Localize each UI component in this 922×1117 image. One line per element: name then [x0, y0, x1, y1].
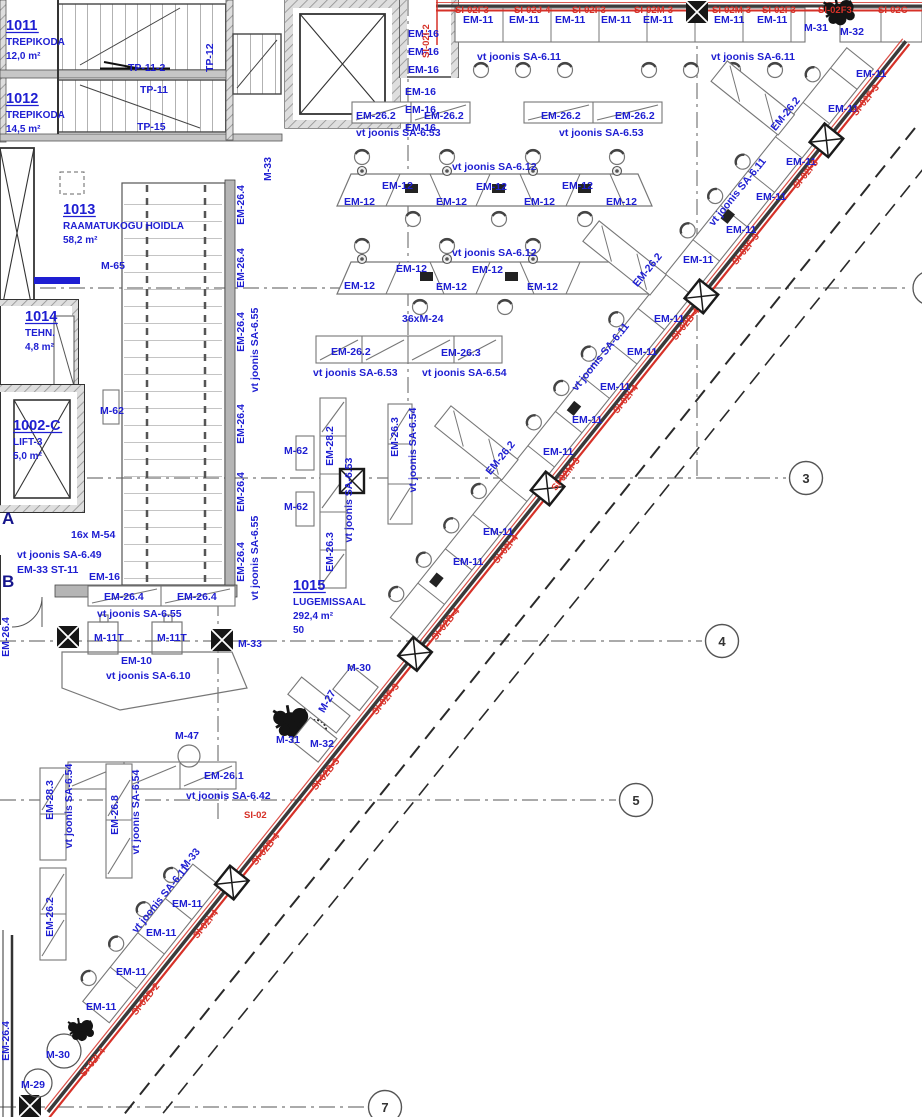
annotation-label: EM-26.4: [104, 591, 144, 603]
annotation-label: M-33: [238, 638, 262, 650]
room-area: 12,0 m²: [6, 51, 41, 62]
room-name: TREPIKODA: [6, 37, 65, 48]
room-number: 1015: [293, 578, 325, 594]
annotation-label: M-65: [101, 260, 125, 272]
annotation-label: EM-12: [436, 281, 467, 293]
column: [686, 1, 708, 23]
annotation-label: EM-11: [555, 14, 586, 26]
annotation-label: EM-10: [121, 655, 152, 667]
annotation-label: EM-11: [116, 966, 147, 978]
annotation-label: EM-11: [683, 254, 714, 266]
room-number: 1014: [25, 309, 57, 325]
room-number: 1011: [6, 18, 37, 34]
annotation-label: EM-26.4: [235, 472, 247, 512]
annotation-label: EM-26.3: [324, 532, 336, 572]
annotation-label: EM-11: [572, 414, 603, 426]
annotation-label: M-31: [804, 22, 828, 34]
annotation-label: EM-26.8: [109, 795, 121, 835]
annotation-label: vt joonis SA-6.54: [130, 770, 142, 855]
annotation-label: EM-33 ST-11: [17, 564, 78, 576]
door-arc: [12, 597, 42, 627]
annotation-label: EM-12: [396, 263, 427, 275]
annotation-label: vt joonis SA-6.53: [559, 127, 644, 139]
annotation-label: vt joonis SA-6.49: [17, 549, 102, 561]
room-name: LIFT-3: [13, 437, 43, 448]
annotation-label: vt joonis SA-6.54: [407, 408, 419, 493]
annotation-label: EM-26.4: [235, 312, 247, 352]
annotation-label: vt joonis SA-6.12: [452, 161, 537, 173]
annotation-label: EM-12: [436, 196, 467, 208]
annotation-label: vt joonis SA-6.53: [356, 127, 441, 139]
annotation-label: vt joonis SA-6.53: [343, 458, 355, 543]
annotation-label: EM-26.4: [0, 1021, 12, 1061]
annotation-label: vt joonis SA-6.42: [186, 790, 271, 802]
annotation-label: EM-11: [643, 14, 674, 26]
annotation-label: EM-12: [344, 280, 375, 292]
annotation-label: SI-02C: [878, 5, 908, 16]
annotation-label: vt joonis SA-6.54: [422, 367, 507, 379]
room-number: 1002-C: [13, 418, 61, 434]
annotation-label: M-32: [310, 738, 334, 750]
annotation-label: M-31: [276, 734, 300, 746]
annotation-label: M-32: [840, 26, 864, 38]
annotation-label: EM-12: [562, 180, 593, 192]
annotation-label: EM-26.2: [424, 110, 464, 122]
annotation-label: EM-12: [382, 180, 413, 192]
grid-bubble: 7: [369, 1091, 402, 1117]
annotation-label: vt joonis SA-6.12: [452, 247, 537, 259]
annotation-label: EM-26.2: [356, 110, 396, 122]
room-name: TREPIKODA: [6, 110, 65, 121]
annotation-label: M-47: [175, 730, 199, 742]
blue-sill: [34, 277, 80, 284]
annotation-label: M-11T: [157, 632, 187, 644]
annotation-label: vt joonis SA-6.55: [97, 608, 182, 620]
annotation-label: vt joonis SA-6.55: [249, 516, 261, 601]
column: [211, 629, 233, 651]
annotation-label: EM-26.4: [235, 404, 247, 444]
grid-bubble: 4: [706, 625, 739, 658]
room-name: TEHN.: [25, 328, 55, 339]
annotation-label: EM-26.4: [177, 591, 217, 603]
room-number: 1013: [63, 202, 95, 218]
annotation-label: EM-11: [509, 14, 540, 26]
annotation-label: EM-26.3: [441, 347, 481, 359]
annotation-label: EM-11: [172, 898, 203, 910]
annotation-label: vt joonis SA-6.11: [711, 51, 795, 63]
annotation-label: vt joonis SA-6.55: [249, 308, 261, 393]
annotation-label: EM-26.2: [541, 110, 581, 122]
room-area: 4,8 m²: [25, 342, 55, 353]
column: [57, 626, 79, 648]
grid-letter: B: [2, 572, 14, 591]
room-area: 5,0 m²: [13, 451, 43, 462]
annotation-label: EM-12: [472, 264, 503, 276]
annotation-label: TP-11-2: [128, 62, 166, 74]
annotation-label: EM-16: [408, 64, 439, 76]
annotation-label: vt joonis SA-6.11: [477, 51, 561, 63]
room-name: LUGEMISSAAL: [293, 597, 366, 608]
grid-bubble-number: 4: [718, 634, 726, 649]
annotation-label: M-29: [21, 1079, 45, 1091]
annotation-label: EM-26.4: [235, 185, 247, 225]
annotation-label: M-33: [262, 157, 274, 181]
annotation-label: EM-26.2: [44, 897, 56, 937]
annotation-label: EM-26.2: [331, 346, 371, 358]
annotation-label: 36xM-24: [402, 313, 444, 325]
room-number: 1012: [6, 91, 38, 107]
annotation-label: TP-12: [204, 43, 216, 72]
elevator-shaft-left: [0, 148, 80, 318]
grid-bubble: 3: [790, 462, 823, 495]
room-area: 58,2 m²: [63, 235, 98, 246]
annotation-label: EM-12: [527, 281, 558, 293]
annotation-label: EM-26.4: [0, 617, 12, 657]
annotation-label: M-62: [284, 501, 308, 513]
annotation-label: EM-11: [453, 556, 484, 568]
stair-tp12-shaft: [233, 34, 281, 94]
annotation-label: M-30: [347, 662, 371, 674]
annotation-label: EM-11: [146, 927, 177, 939]
grid-bubble-number: 7: [381, 1100, 388, 1115]
plant-scribble: [68, 1018, 94, 1041]
annotation-label: EM-16: [405, 86, 436, 98]
annotation-label: EM-11: [714, 14, 745, 26]
grid-bubble: 5: [620, 784, 653, 817]
annotation-label: SI-02I-2: [421, 24, 432, 58]
annotation-label: EM-11: [627, 346, 658, 358]
annotation-label: EM-11: [856, 68, 887, 80]
annotation-label: EM-26.4: [235, 542, 247, 582]
annotation-label: EM-12: [476, 181, 507, 193]
column: [19, 1095, 41, 1117]
annotation-label: vt joonis SA-6.53: [313, 367, 398, 379]
room-capacity: 50: [293, 625, 305, 636]
annotation-label: EM-11: [756, 191, 787, 203]
annotation-label: EM-12: [344, 196, 375, 208]
annotation-label: EM-26.2: [615, 110, 655, 122]
floor-plan-drawing: TP-11-2TP-12TP-11TP-15M-33EM-16EM-16EM-1…: [0, 0, 922, 1117]
room-area: 14,5 m²: [6, 124, 41, 135]
annotation-label: SI-02B-4: [250, 831, 283, 868]
grid-bubble-number: 5: [632, 793, 639, 808]
annotation-label: EM-11: [543, 446, 574, 458]
annotation-label: EM-12: [606, 196, 637, 208]
annotation-label: TP-11: [140, 84, 168, 96]
annotation-label: EM-28.2: [324, 426, 336, 466]
annotation-label: M-62: [284, 445, 308, 457]
annotation-label: EM-16: [89, 571, 120, 583]
room-area: 292,4 m²: [293, 611, 334, 622]
annotation-label: M-62: [100, 405, 124, 417]
annotation-label: 16x M-54: [71, 529, 116, 541]
annotation-label: EM-11: [86, 1001, 117, 1013]
annotation-label: EM-26.4: [235, 248, 247, 288]
floor-plan-canvas: TP-11-2TP-12TP-11TP-15M-33EM-16EM-16EM-1…: [0, 0, 922, 1117]
annotation-label: M-11T: [94, 632, 124, 644]
annotation-label: SI-02B-3: [310, 756, 342, 792]
annotation-label: EM-11: [463, 14, 494, 26]
annotation-label: EM-11: [601, 14, 632, 26]
grid-letter: A: [2, 509, 14, 528]
annotation-label: vt joonis SA-6.10: [106, 670, 191, 682]
grid-bubble-partial-right: [913, 271, 922, 305]
room-name: RAAMATUKOGU HOIDLA: [63, 221, 184, 232]
grid-bubble-number: 3: [802, 471, 809, 486]
annotation-label: M-30: [46, 1049, 70, 1061]
annotation-label: SI-02F3: [818, 5, 852, 16]
annotation-label: vt joonis SA-6.54: [63, 764, 75, 849]
annotation-label: EM-28.3: [44, 780, 56, 820]
annotation-label: EM-12: [524, 196, 555, 208]
annotation-label: SI-02: [244, 810, 267, 821]
annotation-label: TP-15: [137, 121, 166, 133]
annotation-label: EM-11: [757, 14, 788, 26]
annotation-label: EM-26.3: [389, 417, 401, 457]
annotation-label: EM-26.1: [204, 770, 244, 782]
